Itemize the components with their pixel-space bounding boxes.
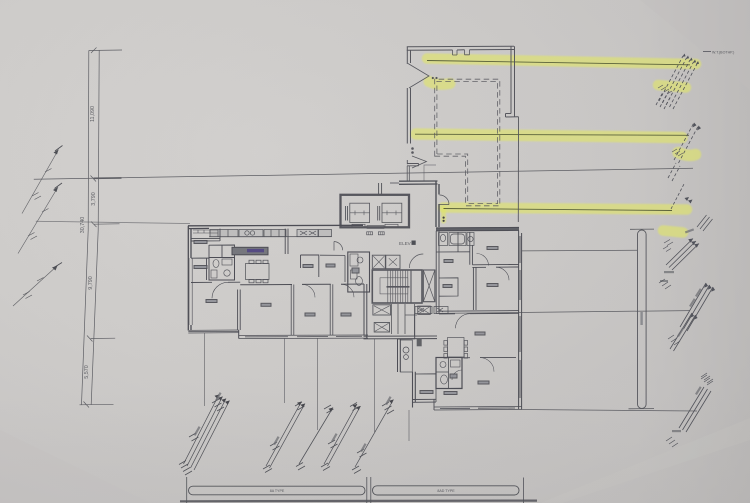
svg-text:11,090: 11,090 [90, 106, 96, 122]
svg-text:5,570: 5,570 [84, 365, 90, 379]
svg-text:W.T.(BOTHP.): W.T.(BOTHP.) [712, 51, 734, 55]
svg-text:8A TYPE: 8A TYPE [270, 489, 285, 493]
svg-text:8AD TYPE: 8AD TYPE [437, 489, 455, 493]
svg-text:9,790: 9,790 [88, 276, 94, 290]
svg-text:3,790: 3,790 [91, 192, 97, 206]
svg-text:30,740: 30,740 [80, 217, 86, 234]
svg-text:ELEV: ELEV [399, 241, 412, 246]
